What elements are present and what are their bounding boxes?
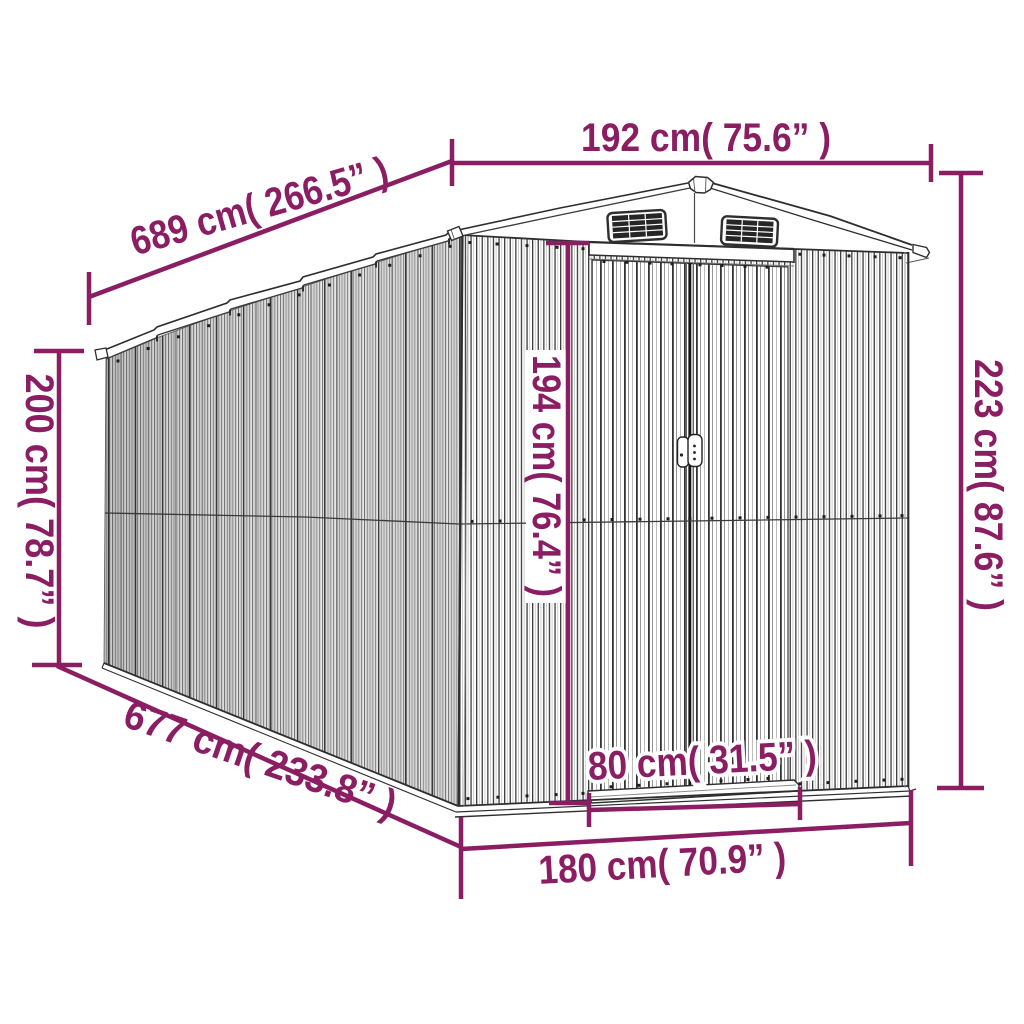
svg-text:192 cm( 75.6” ): 192 cm( 75.6” ) [581, 116, 831, 160]
svg-text:689 cm( 266.5” ): 689 cm( 266.5” ) [126, 149, 394, 265]
svg-text:194 cm( 76.4” ): 194 cm( 76.4” ) [524, 355, 568, 597]
svg-text:200 cm( 78.7” ): 200 cm( 78.7” ) [17, 374, 61, 629]
svg-text:223 cm( 87.6” ): 223 cm( 87.6” ) [966, 359, 1010, 611]
